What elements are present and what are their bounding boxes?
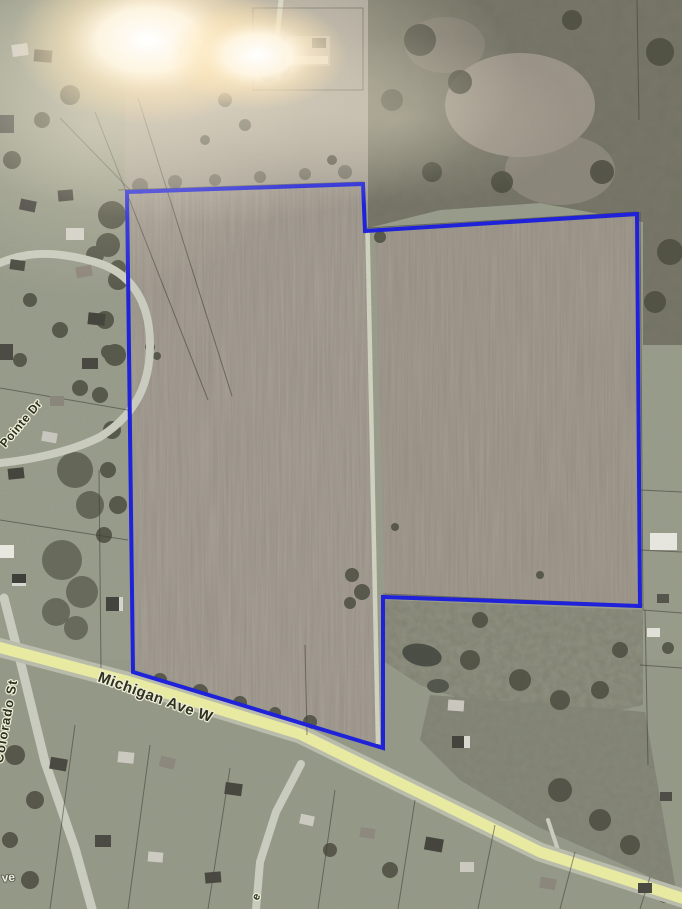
house: [148, 851, 164, 862]
label-partial-ave: ve: [1, 870, 16, 885]
house: [82, 358, 98, 369]
house: [106, 597, 123, 611]
house: [224, 782, 243, 796]
aerial-map: Michigan Ave W Colorado St Pointe Dr ve …: [0, 0, 682, 909]
house: [12, 574, 26, 586]
barn: [650, 533, 677, 550]
house: [95, 835, 111, 847]
map-viewport[interactable]: Michigan Ave W Colorado St Pointe Dr ve …: [0, 0, 682, 909]
house: [87, 312, 105, 326]
barn: [647, 628, 660, 637]
house: [0, 545, 14, 558]
house: [205, 871, 222, 883]
house: [448, 699, 465, 711]
house: [452, 736, 470, 748]
house: [0, 344, 13, 360]
shed: [660, 792, 672, 801]
house: [50, 396, 64, 406]
house: [359, 827, 375, 839]
house: [117, 751, 134, 764]
house: [460, 862, 474, 872]
house: [8, 467, 25, 480]
shed: [657, 594, 669, 603]
house: [638, 883, 652, 893]
